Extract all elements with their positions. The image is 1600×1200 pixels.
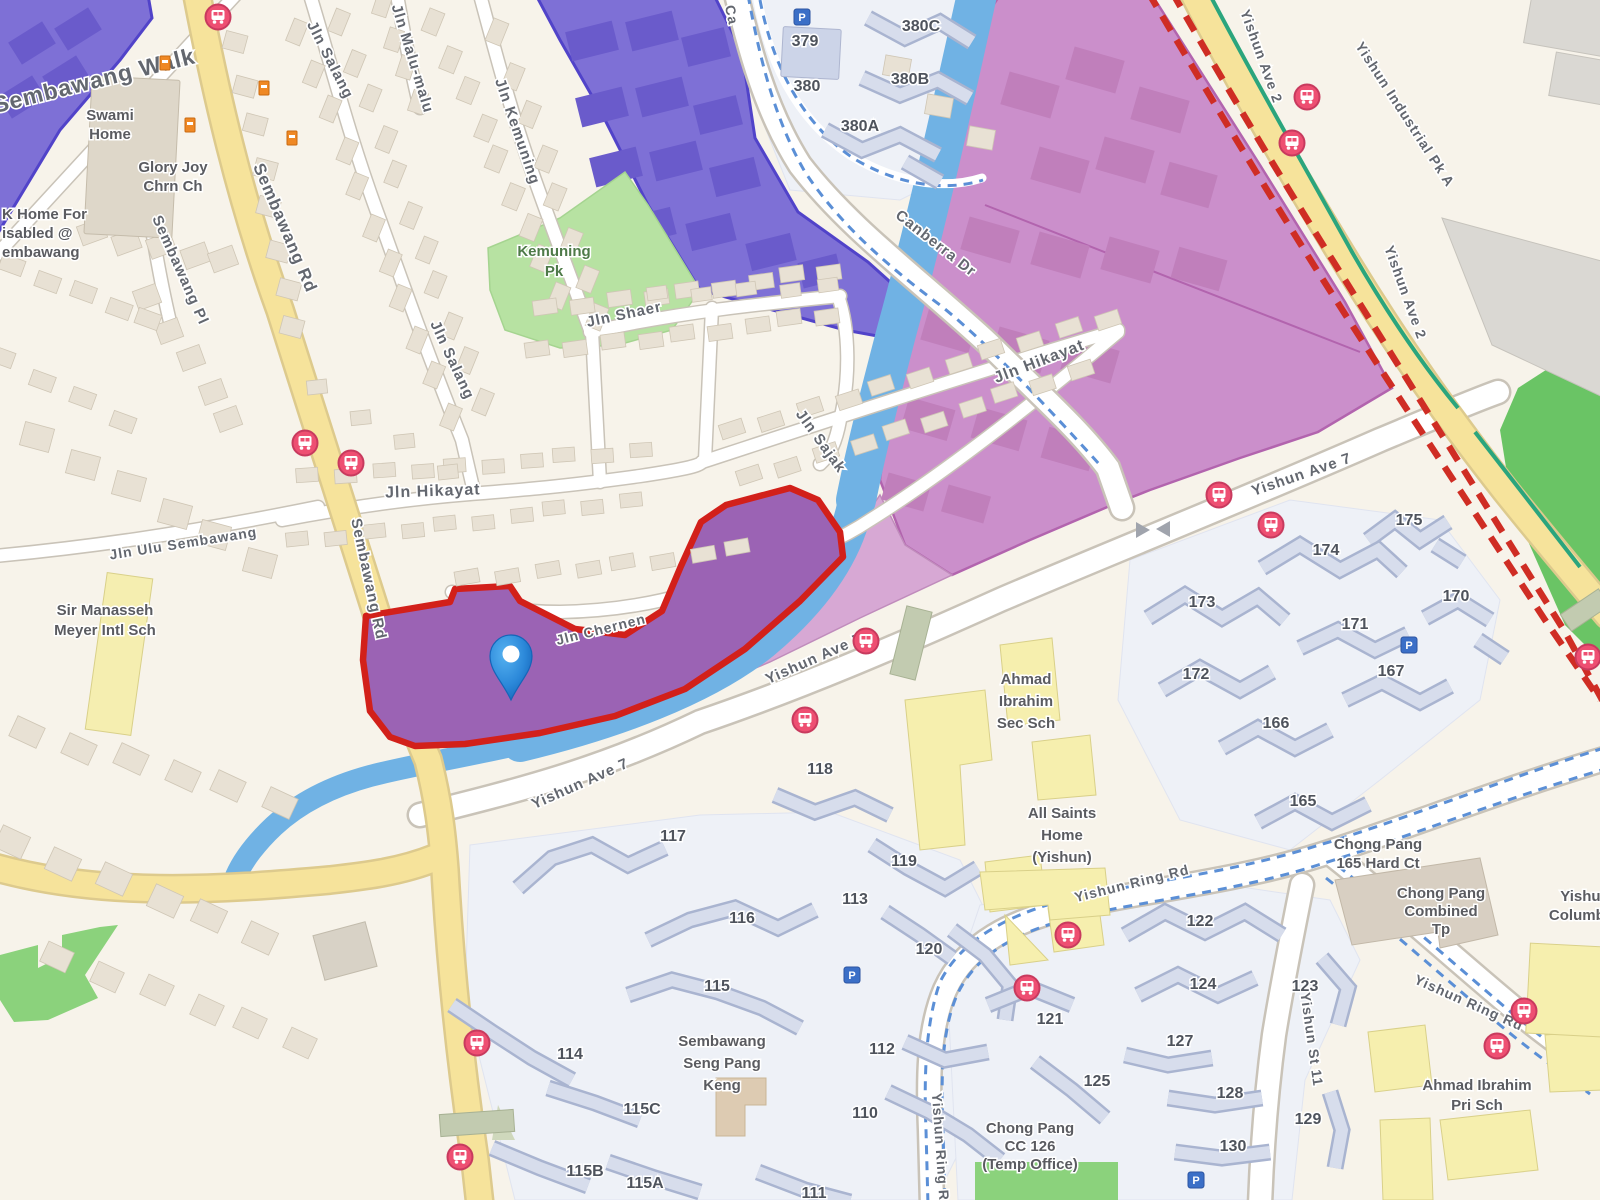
terrace-house <box>524 340 550 358</box>
poi-landmark-icon <box>259 81 269 95</box>
block-number-label: 118 <box>807 761 833 778</box>
bus-stop-icon <box>854 629 879 654</box>
block-number-label: 116 <box>729 910 755 927</box>
place-label-glory-joy-chrn-ch: Chrn Ch <box>143 178 202 195</box>
terrace-house <box>924 94 953 118</box>
place-label-ahmad-ibrahim-sec-sch: Ibrahim <box>999 693 1053 710</box>
terrace-house <box>745 316 771 334</box>
place-label-swami-home: Home <box>89 126 131 143</box>
place-label-chong-pang-combined-tp: Combined <box>1404 903 1477 920</box>
place-label-ahmad-ibrahim-pri-sch: Pri Sch <box>1451 1097 1503 1114</box>
place-label-all-saints-home-yishun: Home <box>1041 827 1083 844</box>
block-number-label: 380B <box>891 71 929 88</box>
terrace-house <box>707 323 733 341</box>
block-number-label: 167 <box>1378 663 1405 680</box>
block-number-label: 173 <box>1189 594 1216 611</box>
place-label-kemuning-pk: Kemuning <box>517 243 590 260</box>
place-label-chong-pang-cc: Chong Pang <box>986 1120 1074 1137</box>
svg-text:P: P <box>1192 1175 1199 1187</box>
place-label-sir-manasseh-meyer-intl-sch: Sir Manasseh <box>57 602 154 619</box>
block-number-label: 115 <box>704 978 730 995</box>
terrace-house <box>581 499 604 515</box>
place-label-sembawang-seng-pang-keng: Sembawang <box>678 1033 766 1050</box>
bus-stop-icon <box>1259 513 1284 538</box>
terrace-house <box>437 464 458 480</box>
terrace-house <box>779 265 805 283</box>
terrace-house <box>472 515 495 531</box>
bus-stop-icon <box>1207 483 1232 508</box>
block-number-label: 165 <box>1290 793 1317 810</box>
terrace-house <box>814 308 840 326</box>
terrace-house <box>350 410 371 426</box>
block-number-label: 166 <box>1263 715 1290 732</box>
place-label-chong-pang-cc: (Temp Office) <box>982 1156 1078 1173</box>
poi-landmark-icon <box>185 118 195 132</box>
terrace-house <box>433 515 456 531</box>
place-label-sembawang-seng-pang-keng: Keng <box>703 1077 741 1094</box>
place-label-sembawang-seng-pang-keng: Seng Pang <box>683 1055 761 1072</box>
place-label-all-saints-home-yishun: All Saints <box>1028 805 1096 822</box>
terrace-house <box>600 332 626 350</box>
terrace-house <box>780 283 802 299</box>
terrace-house <box>401 523 424 539</box>
terrace-house <box>711 280 737 298</box>
block-number-label: 129 <box>1295 1111 1322 1128</box>
place-label-ahmad-ibrahim-sec-sch: Ahmad <box>1001 671 1052 688</box>
place-label-chong-pang-165-hard-ct: Chong Pang <box>1334 836 1422 853</box>
block-number-label: 112 <box>869 1041 895 1058</box>
terrace-house <box>776 308 802 326</box>
block-number-label: 119 <box>891 853 917 870</box>
place-label-chong-pang-cc: CC 126 <box>1005 1138 1056 1155</box>
block-number-label: 170 <box>1443 588 1470 605</box>
terrace-house <box>619 492 642 508</box>
terrace-house <box>562 339 588 357</box>
svg-text:P: P <box>848 970 855 982</box>
bus-stop-icon <box>1576 645 1600 670</box>
terrace-house <box>669 324 695 342</box>
terrace-house <box>482 459 505 475</box>
parking-icon: P <box>844 967 860 983</box>
terrace-house <box>691 287 713 303</box>
map-canvas[interactable]: Sembawang WalkSembawang RdSembawang PlJl… <box>0 0 1600 1200</box>
terrace-house <box>542 500 565 516</box>
block-number-label: 175 <box>1396 512 1423 529</box>
block-number-label: 380C <box>902 18 941 35</box>
bus-stop-icon <box>1056 923 1081 948</box>
bus-stop-icon <box>293 431 318 456</box>
block-number-label: 114 <box>557 1046 583 1063</box>
block-number-label: 117 <box>660 828 686 845</box>
block-number-label: 121 <box>1037 1011 1064 1028</box>
bus-stop-icon <box>1485 1034 1510 1059</box>
terrace-house <box>638 331 664 349</box>
map-viewport[interactable]: Sembawang WalkSembawang RdSembawang PlJl… <box>0 0 1600 1200</box>
place-label-ahmad-ibrahim-pri-sch: Ahmad Ibrahim <box>1422 1077 1531 1094</box>
block-number-label: 171 <box>1342 616 1369 633</box>
block-number-label: 110 <box>852 1105 878 1122</box>
terrace-house <box>306 379 327 395</box>
block-number-label: 174 <box>1313 542 1340 559</box>
terrace-house <box>817 277 839 293</box>
block-number-label: 172 <box>1183 666 1210 683</box>
bus-stop-icon <box>206 5 231 30</box>
block-number-label: 128 <box>1217 1085 1244 1102</box>
place-label-all-saints-home-yishun: (Yishun) <box>1032 849 1091 866</box>
swami-home-building <box>84 76 180 238</box>
place-label-swami-home: Swami <box>86 107 134 124</box>
block-number-label: 124 <box>1190 976 1217 993</box>
block-number-label: 120 <box>916 941 943 958</box>
bus-stop-icon <box>339 451 364 476</box>
place-label-glory-joy-chrn-ch: Glory Joy <box>138 159 208 176</box>
terrace-house <box>373 462 396 478</box>
bus-stop-icon <box>465 1031 490 1056</box>
block-number-label: 125 <box>1084 1073 1111 1090</box>
terrace-house <box>412 464 435 480</box>
place-label-home-for-disabled: isabled @ <box>2 225 72 242</box>
block-number-label: 115C <box>623 1101 661 1118</box>
poi-landmark-icon <box>287 131 297 145</box>
bus-stop-icon <box>1295 85 1320 110</box>
block-number-label: 115A <box>626 1175 664 1192</box>
terrace-house <box>510 507 533 523</box>
place-label-ahmad-ibrahim-sec-sch: Sec Sch <box>997 715 1055 732</box>
place-label-chong-pang-combined-tp: Tp <box>1432 921 1450 938</box>
place-label-chong-pang-combined-tp: Chong Pang <box>1397 885 1485 902</box>
bus-stop-icon <box>1015 976 1040 1001</box>
place-label-yishun-columbarium-1: Yishun <box>1560 888 1600 905</box>
terrace-house <box>552 447 575 463</box>
terrace-house <box>630 442 653 458</box>
place-label-chong-pang-165-hard-ct: 165 Hard Ct <box>1336 855 1419 872</box>
terrace-house <box>591 448 614 464</box>
block-number-label: 123 <box>1292 978 1319 995</box>
terrace-house <box>394 433 415 449</box>
parking-icon: P <box>1401 637 1417 653</box>
bus-stop-icon <box>1512 999 1537 1024</box>
terrace-house <box>735 281 757 297</box>
place-label-home-for-disabled: K Home For <box>2 206 87 223</box>
block-number-label: 380A <box>841 118 880 135</box>
block-number-label: 130 <box>1220 1138 1247 1155</box>
block-number-label: 122 <box>1187 913 1214 930</box>
block-number-label: 127 <box>1167 1033 1194 1050</box>
terrace-house <box>285 531 308 547</box>
terrace-house <box>521 453 544 469</box>
terrace-house <box>532 298 558 316</box>
parking-icon: P <box>794 9 810 25</box>
block-number-label: 380 <box>794 78 821 95</box>
place-label-yishun-columbarium-2: Columba <box>1549 907 1600 924</box>
terrace-house <box>966 126 995 150</box>
poi-landmark-icon <box>160 56 170 70</box>
bus-stop-icon <box>1280 131 1305 156</box>
terrace-house <box>324 530 347 546</box>
svg-text:P: P <box>1405 640 1412 652</box>
bus-stop-icon <box>448 1145 473 1170</box>
svg-text:P: P <box>798 12 805 24</box>
place-label-home-for-disabled: embawang <box>2 244 80 261</box>
block-number-label: 111 <box>802 1185 827 1200</box>
block-number-label: 115B <box>566 1163 603 1180</box>
place-label-sir-manasseh-meyer-intl-sch: Meyer Intl Sch <box>54 622 156 639</box>
parking-icon: P <box>1188 1172 1204 1188</box>
bus-stop-icon <box>793 708 818 733</box>
terrace-house <box>296 467 319 483</box>
yellow-building-right-edge <box>1526 943 1600 1037</box>
block-number-label: 113 <box>842 891 868 908</box>
place-label-kemuning-pk: Pk <box>545 263 564 280</box>
hdb-block-inner <box>1168 1098 1262 1105</box>
road-label-jln-hikayat-w: Jln Hikayat <box>385 481 481 501</box>
block-number-label: 379 <box>792 33 819 50</box>
